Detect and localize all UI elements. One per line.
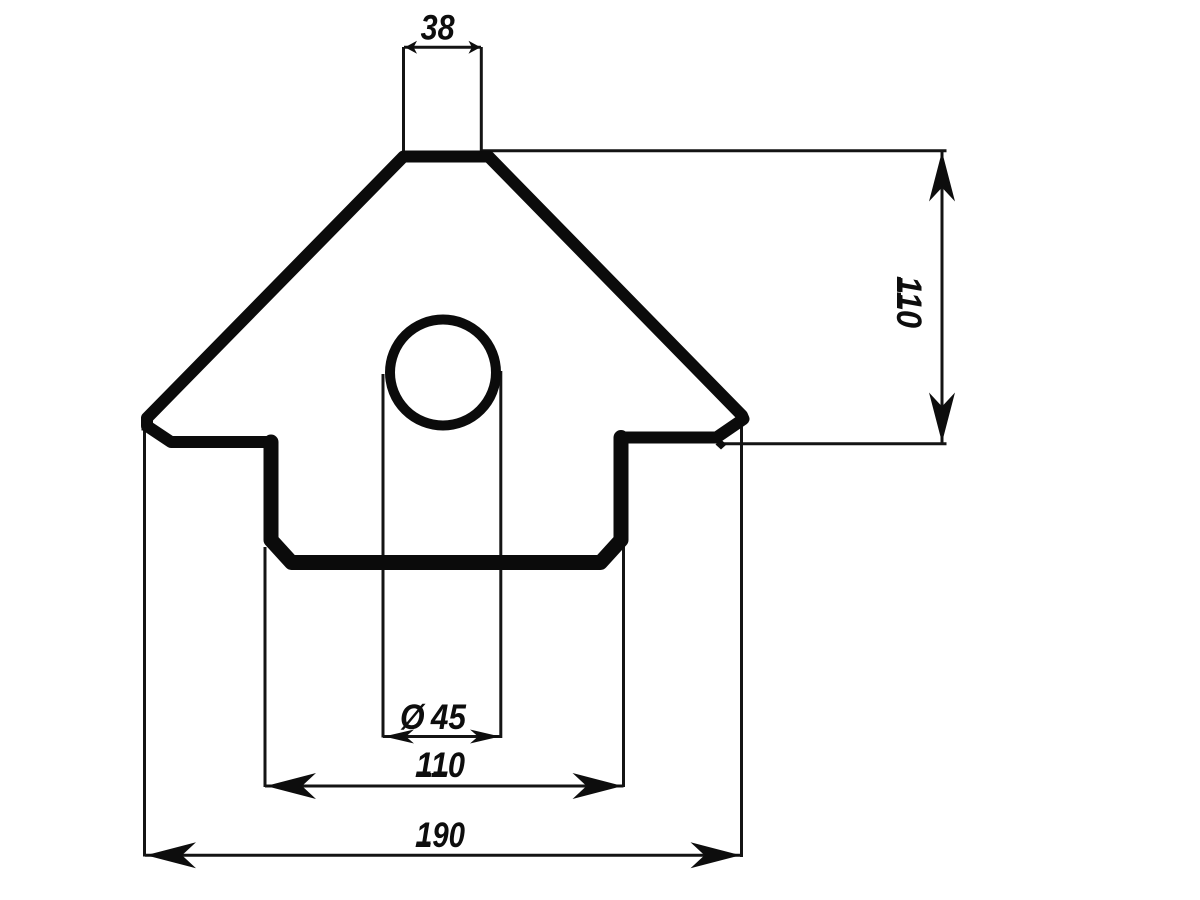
svg-text:38: 38 (421, 9, 455, 48)
svg-text:Ø 45: Ø 45 (400, 698, 466, 737)
svg-text:190: 190 (416, 816, 465, 855)
svg-text:110: 110 (889, 276, 928, 328)
svg-text:110: 110 (416, 746, 465, 785)
